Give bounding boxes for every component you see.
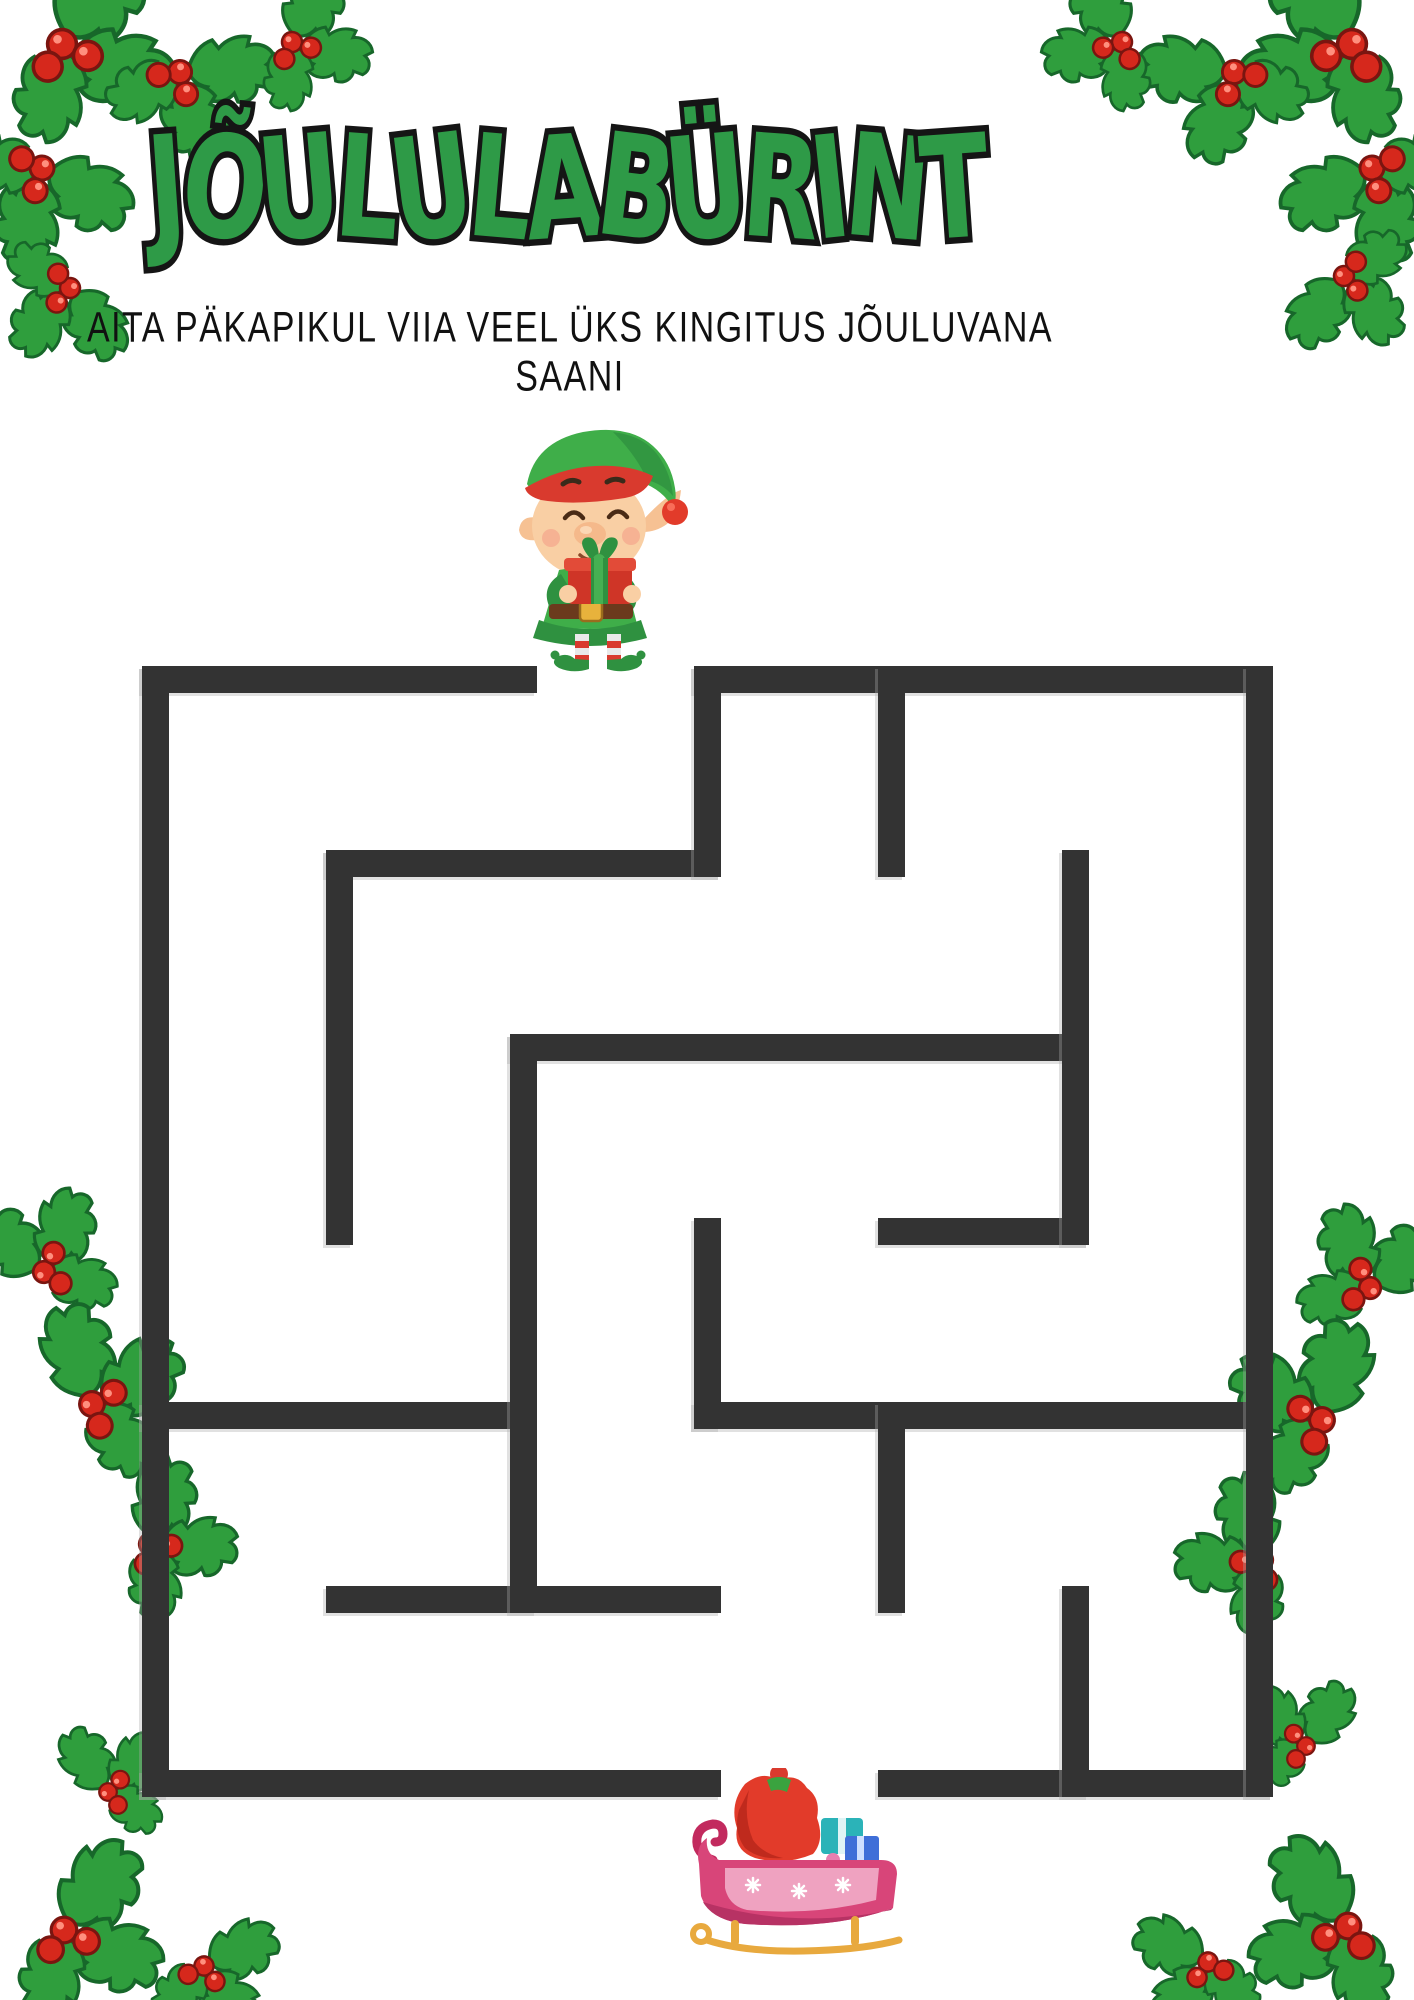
maze-wall [142,1402,537,1429]
maze-wall [510,1034,537,1613]
maze-wall [878,666,905,877]
maze [0,0,1414,2000]
maze-wall [1246,666,1273,1797]
maze-wall [878,1402,905,1613]
maze-wall [142,1770,721,1797]
maze-wall [326,850,721,877]
maze-wall [326,850,353,1245]
elf-hat-pompom [662,499,688,525]
maze-wall [694,666,721,877]
maze-wall [694,1218,721,1429]
maze-wall [142,666,169,1797]
maze-wall [1062,1586,1089,1797]
maze-wall [878,1218,1089,1245]
maze-wall [1062,850,1089,1245]
sleigh-graphic [683,1768,917,1973]
maze-wall [694,666,1273,693]
maze-wall [694,1402,1273,1429]
sack-tie [767,1777,791,1792]
maze-wall [510,1034,1089,1061]
elf-character [517,426,697,676]
worksheet-page: JÕULULABÜRINT AITA PÄKAPIKUL VIIA VEEL Ü… [0,0,1414,2000]
maze-wall [142,666,537,693]
